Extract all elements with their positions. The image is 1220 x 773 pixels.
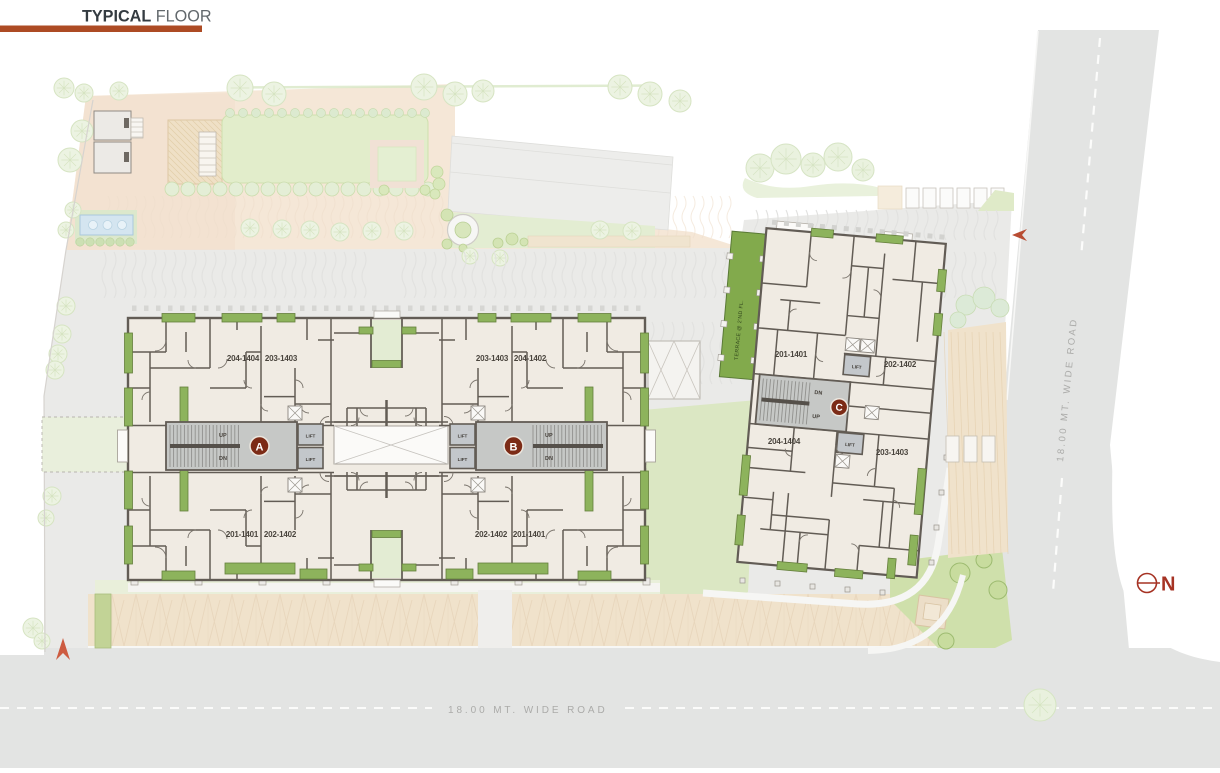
- svg-text:C: C: [835, 402, 843, 414]
- svg-text:UP: UP: [219, 433, 227, 439]
- svg-text:18.00 MT. WIDE ROAD: 18.00 MT. WIDE ROAD: [448, 705, 608, 716]
- svg-text:203-1403: 203-1403: [476, 354, 509, 363]
- svg-text:204-1404: 204-1404: [768, 437, 801, 446]
- svg-text:TYPICAL FLOOR: TYPICAL FLOOR: [82, 8, 212, 26]
- svg-text:204-1404: 204-1404: [227, 354, 260, 363]
- svg-text:203-1403: 203-1403: [876, 448, 909, 457]
- svg-text:LIFT: LIFT: [845, 442, 855, 448]
- svg-text:202-1402: 202-1402: [264, 530, 297, 539]
- svg-text:A: A: [256, 442, 264, 454]
- svg-text:UP: UP: [812, 414, 820, 421]
- svg-text:B: B: [510, 442, 518, 454]
- svg-text:DN: DN: [545, 456, 553, 462]
- svg-text:DN: DN: [219, 456, 227, 462]
- svg-text:LIFT: LIFT: [458, 457, 468, 462]
- svg-text:LIFT: LIFT: [458, 434, 468, 439]
- svg-text:UP: UP: [545, 433, 553, 439]
- svg-text:LIFT: LIFT: [852, 364, 862, 370]
- svg-text:N: N: [1161, 574, 1175, 596]
- svg-text:201-1401: 201-1401: [226, 530, 259, 539]
- svg-text:201-1401: 201-1401: [775, 350, 808, 359]
- svg-text:204-1402: 204-1402: [514, 354, 547, 363]
- svg-text:DN: DN: [814, 390, 822, 397]
- svg-text:LIFT: LIFT: [306, 434, 316, 439]
- svg-text:LIFT: LIFT: [306, 457, 316, 462]
- svg-text:201-1401: 201-1401: [513, 530, 546, 539]
- svg-text:203-1403: 203-1403: [265, 354, 298, 363]
- svg-text:202-1402: 202-1402: [475, 530, 508, 539]
- svg-text:202-1402: 202-1402: [884, 360, 917, 369]
